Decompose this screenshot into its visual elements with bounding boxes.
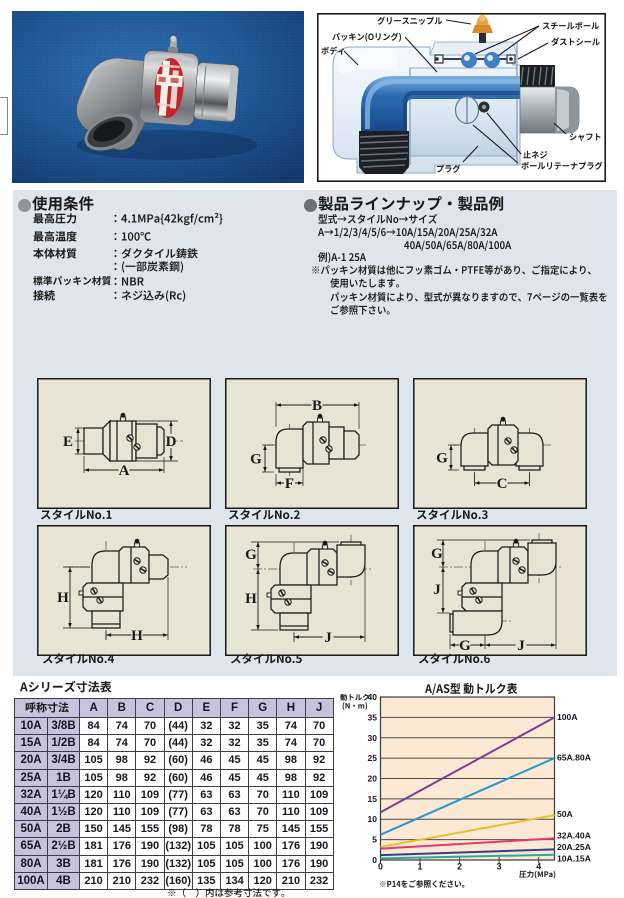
svg-text:32A.40A: 32A.40A [557, 831, 591, 841]
svg-text:G: G [431, 546, 443, 562]
svg-text:0: 0 [378, 862, 383, 872]
svg-text:F: F [285, 476, 294, 492]
svg-text:10A.15A: 10A.15A [557, 854, 591, 864]
svg-text:H: H [57, 590, 69, 606]
svg-text:C: C [497, 476, 508, 492]
svg-text:25: 25 [368, 753, 378, 763]
svg-text:10: 10 [368, 814, 378, 824]
svg-text:35: 35 [368, 712, 378, 722]
svg-text:H: H [245, 591, 257, 607]
svg-text:B: B [312, 398, 322, 414]
svg-text:G: G [245, 547, 257, 563]
svg-text:20A.25A: 20A.25A [557, 842, 591, 852]
svg-text:D: D [166, 434, 177, 450]
svg-text:1: 1 [418, 862, 423, 872]
svg-text:50A: 50A [557, 809, 573, 819]
svg-text:5: 5 [372, 835, 377, 845]
svg-text:40: 40 [368, 692, 378, 702]
svg-text:0: 0 [372, 855, 377, 865]
svg-text:3: 3 [497, 862, 502, 872]
svg-text:H: H [131, 628, 143, 644]
svg-text:2: 2 [457, 862, 462, 872]
svg-text:65A.80A: 65A.80A [557, 753, 591, 763]
svg-text:30: 30 [368, 733, 378, 743]
svg-text:G: G [436, 451, 448, 467]
svg-text:100A: 100A [557, 712, 578, 722]
svg-text:J: J [517, 638, 525, 654]
svg-text:J: J [324, 630, 332, 646]
svg-text:E: E [63, 434, 73, 450]
svg-text:20: 20 [368, 774, 378, 784]
svg-text:15: 15 [368, 794, 378, 804]
svg-text:A: A [119, 463, 130, 479]
svg-text:G: G [250, 452, 262, 468]
svg-text:J: J [433, 582, 441, 598]
svg-text:4: 4 [536, 862, 541, 872]
